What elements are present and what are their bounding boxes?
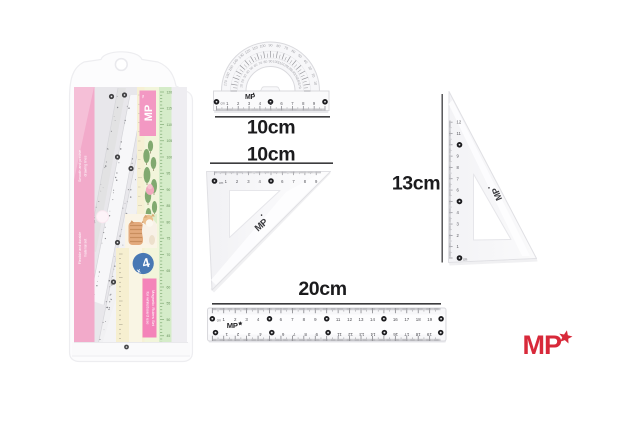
svg-text:cm: cm (219, 181, 224, 185)
svg-text:cm: cm (463, 258, 468, 262)
svg-text:12: 12 (457, 120, 462, 125)
svg-text:cm: cm (217, 319, 222, 323)
svg-text:10: 10 (313, 81, 318, 86)
svg-text:10cm: 10cm (247, 117, 295, 139)
svg-text:MP: MP (227, 321, 238, 330)
svg-text:12: 12 (348, 332, 353, 337)
svg-text:10: 10 (239, 84, 244, 89)
svg-text:80: 80 (276, 44, 281, 49)
svg-text:19: 19 (426, 332, 431, 337)
svg-text:MP: MP (523, 330, 562, 360)
svg-text:14: 14 (370, 317, 375, 322)
svg-text:80: 80 (263, 60, 268, 65)
svg-text:11: 11 (336, 317, 341, 322)
svg-text:12: 12 (347, 317, 352, 322)
svg-text:11: 11 (337, 332, 342, 337)
svg-text:13cm: 13cm (392, 173, 440, 195)
svg-text:17: 17 (404, 317, 409, 322)
svg-text:10cm: 10cm (247, 144, 295, 166)
svg-text:20cm: 20cm (298, 278, 346, 300)
svg-text:16: 16 (393, 317, 398, 322)
svg-text:13: 13 (359, 317, 364, 322)
svg-text:18: 18 (416, 317, 421, 322)
svg-text:11: 11 (457, 131, 462, 136)
svg-text:13: 13 (359, 332, 364, 337)
svg-text:19: 19 (427, 317, 432, 322)
svg-text:cm: cm (221, 102, 226, 106)
svg-text:90: 90 (269, 44, 273, 48)
